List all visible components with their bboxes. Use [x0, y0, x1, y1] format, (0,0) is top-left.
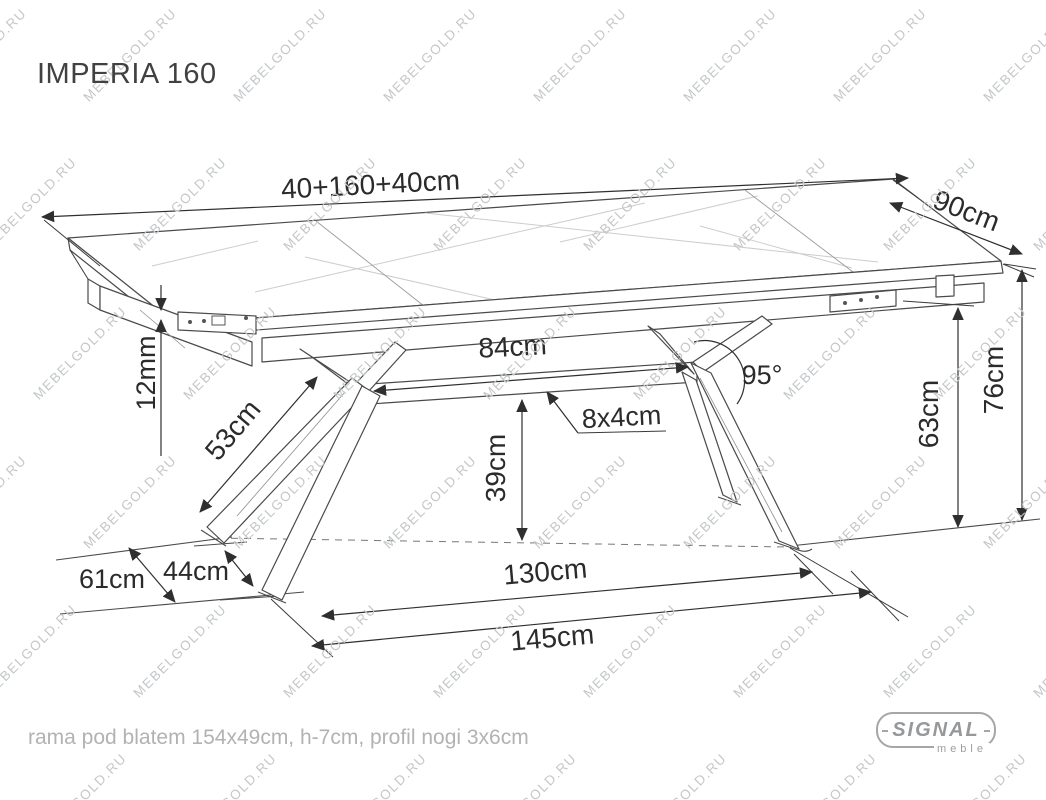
dim-stretcher-floor-clearance-label: 39cm	[480, 434, 511, 502]
dim-base-depth: 61cm	[79, 548, 175, 602]
dim-table-height: 76cm	[978, 264, 1036, 520]
frame-note: rama pod blatem 154x49cm, h-7cm, profil …	[28, 726, 529, 750]
stretcher-bar	[370, 362, 697, 404]
leaf-support-left-face	[88, 279, 100, 310]
dim-total-length-label: 40+160+40cm	[280, 164, 460, 204]
screw-dot	[843, 301, 847, 305]
dim-top-thickness-label: 12mm	[131, 335, 161, 410]
dim-leg-length-label: 53cm	[199, 394, 267, 466]
table-technical-drawing: 40+160+40cm 90cm 12mm 53cm 84cm	[0, 0, 1046, 800]
dim-underframe-height-label: 63cm	[913, 380, 944, 448]
screw-dot	[875, 295, 879, 299]
screw-dot	[859, 298, 863, 302]
logo-brand-text: SIGNAL	[888, 719, 984, 742]
dim-feet-span-outer: 145cm	[312, 592, 871, 657]
screw-dot	[188, 320, 192, 324]
dim-underframe-height: 63cm	[903, 301, 974, 527]
dim-table-height-label: 76cm	[978, 346, 1009, 414]
screw-dot	[202, 319, 206, 323]
dim-stretcher-floor-clearance: 39cm	[480, 400, 522, 540]
dim-stretcher-profile-label: 8x4cm	[581, 400, 662, 434]
product-diagram-page: IMPERIA 160	[0, 0, 1046, 800]
screw-dot	[244, 316, 248, 320]
dim-feet-span-inner-label: 130cm	[502, 552, 588, 590]
dim-base-depth-label: 61cm	[79, 564, 145, 594]
dim-feet-span-inner: 130cm	[322, 552, 812, 616]
dim-stretcher-span-label: 84cm	[478, 329, 548, 364]
dim-feet-span-outer-label: 145cm	[509, 618, 595, 656]
logo-sub-text: meble	[934, 743, 990, 755]
dim-foot-spacing-label: 44cm	[163, 556, 229, 586]
dim-foot-spacing: 44cm	[163, 551, 253, 586]
dim-stretcher-profile: 8x4cm	[547, 392, 666, 434]
signal-meble-logo: SIGNAL meble	[876, 712, 996, 748]
dim-leg-angle-label: 95°	[742, 360, 783, 390]
leaf-support-right	[936, 275, 954, 297]
page-title: IMPERIA 160	[37, 58, 217, 91]
